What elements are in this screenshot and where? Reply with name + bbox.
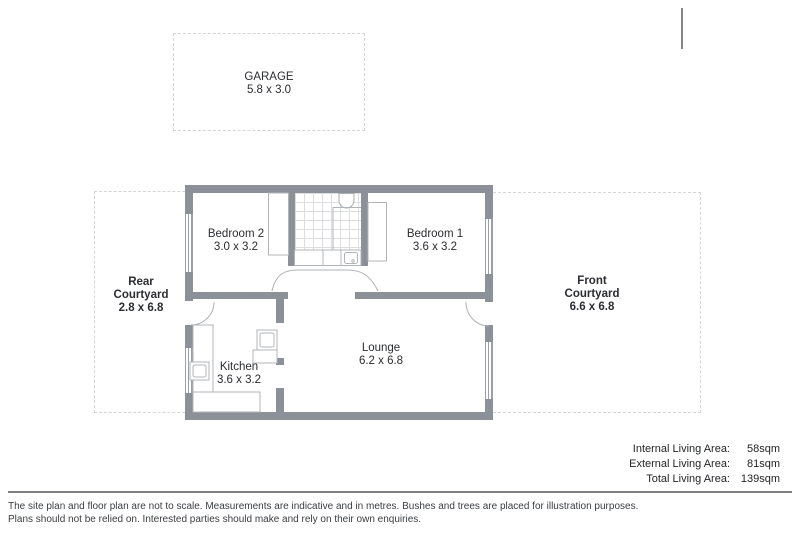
shower-screen-line [333,208,361,251]
front-courtyard-dims: 6.6 x 6.8 [565,301,620,314]
bedroom2-name: Bedroom 2 [208,228,264,241]
rear-courtyard-name-2: Courtyard [114,289,169,302]
area-row-external: External Living Area: 81sqm [629,457,780,472]
bedroom2-robe [269,193,289,255]
rear-courtyard-name-1: Rear [114,276,169,289]
total-area-label: Total Living Area: [646,472,730,487]
kitchen-label: Kitchen 3.6 x 3.2 [217,361,261,387]
disclaimer-line-1: The site plan and floor plan are not to … [8,500,638,513]
external-area-label: External Living Area: [629,457,730,472]
disclaimer-line-2: Plans should not be relied on. Intereste… [8,513,638,526]
kitchen-door-arc [191,302,214,325]
bedroom2-label: Bedroom 2 3.0 x 3.2 [208,228,264,254]
area-row-total: Total Living Area: 139sqm [629,472,780,487]
lounge-door-arc [466,302,489,326]
total-area-value: 139sqm [730,472,780,487]
bathroom-vanity [295,250,342,266]
front-courtyard-name-2: Courtyard [565,288,620,301]
kitchen-counter-bottom [193,392,260,412]
bedroom1-label: Bedroom 1 3.6 x 3.2 [407,228,463,254]
floorplan-page: GARAGE 5.8 x 3.0 Bedroom 2 3.0 x 3.2 Bed… [0,0,800,538]
bedroom1-robe [368,203,387,262]
front-courtyard-label: Front Courtyard 6.6 x 6.8 [565,275,620,314]
lounge-dims: 6.2 x 6.8 [359,355,403,368]
lounge-label: Lounge 6.2 x 6.8 [359,342,403,368]
rear-courtyard-dims: 2.8 x 6.8 [114,302,169,315]
area-row-internal: Internal Living Area: 58sqm [629,442,780,457]
kitchen-name: Kitchen [217,361,261,374]
hallway-arch [272,270,378,291]
kitchen-dims: 3.6 x 3.2 [217,374,261,387]
bedroom1-dims: 3.6 x 3.2 [407,241,463,254]
garage-name: GARAGE [244,71,293,84]
lounge-name: Lounge [359,342,403,355]
garage-label: GARAGE 5.8 x 3.0 [244,71,293,97]
rear-courtyard-label: Rear Courtyard 2.8 x 6.8 [114,276,169,315]
footer-divider [8,491,792,493]
internal-area-value: 58sqm [730,442,780,457]
disclaimer: The site plan and floor plan are not to … [8,500,638,526]
external-area-value: 81sqm [730,457,780,472]
bedroom1-name: Bedroom 1 [407,228,463,241]
toilet [339,194,354,209]
kitchen-counter-left [193,325,213,392]
internal-area-label: Internal Living Area: [633,442,730,457]
garage-dims: 5.8 x 3.0 [244,84,293,97]
front-courtyard-name-1: Front [565,275,620,288]
area-summary: Internal Living Area: 58sqm External Liv… [629,442,780,487]
bedroom2-dims: 3.0 x 3.2 [208,241,264,254]
